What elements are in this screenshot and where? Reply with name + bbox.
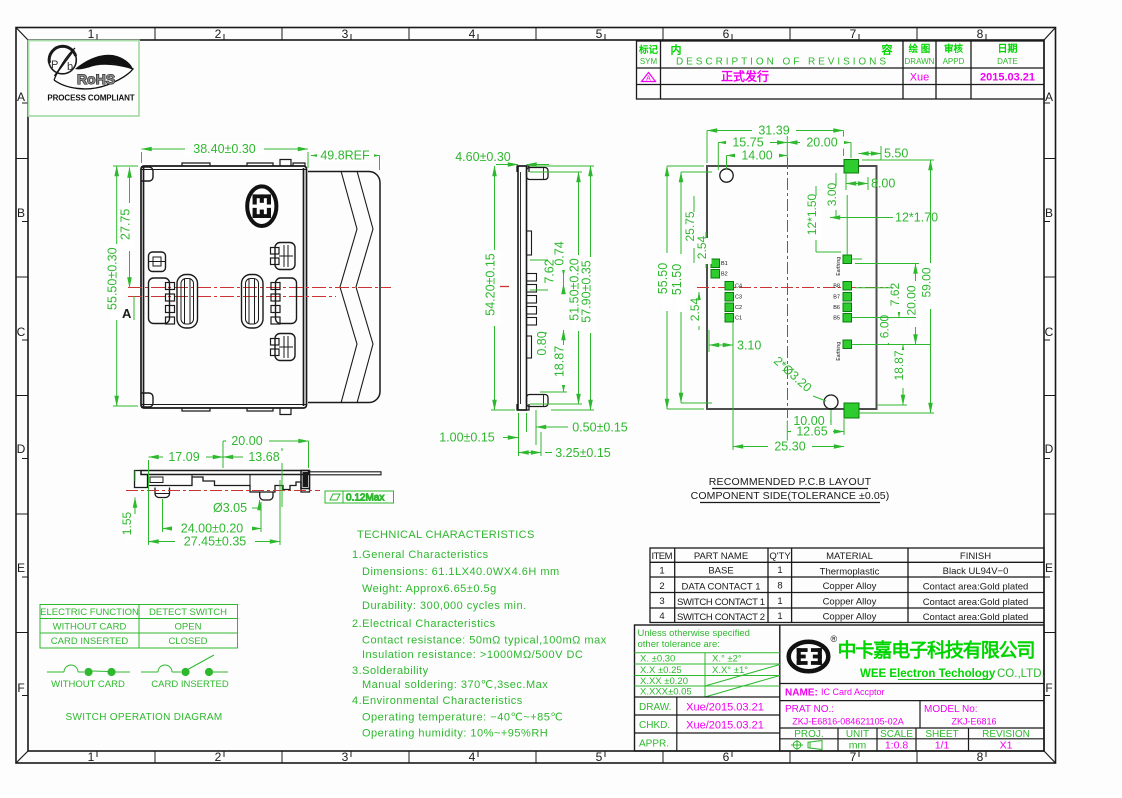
svg-text:X.X° ±1°: X.X° ±1° — [712, 665, 748, 676]
svg-text:55.50: 55.50 — [656, 263, 670, 294]
svg-text:51.50: 51.50 — [670, 264, 684, 295]
svg-text:PRAT NO.:: PRAT NO.: — [785, 704, 834, 715]
svg-text:1.55: 1.55 — [120, 511, 134, 535]
svg-text:RoHS: RoHS — [77, 71, 115, 87]
svg-text:4: 4 — [469, 750, 476, 764]
svg-text:REVISION: REVISION — [982, 729, 1030, 740]
svg-text:7.62: 7.62 — [888, 282, 902, 306]
svg-text:6.00: 6.00 — [878, 314, 892, 338]
svg-text:内: 内 — [671, 43, 682, 57]
svg-text:20.00: 20.00 — [905, 285, 919, 315]
svg-text:A: A — [17, 90, 25, 104]
svg-text:0.74: 0.74 — [553, 241, 567, 265]
svg-text:Dimensions: 61.1LX40.0WX4.6H: Dimensions: 61.1LX40.0WX4.6H mm — [362, 566, 560, 578]
svg-text:CO.,LTD.: CO.,LTD. — [997, 668, 1045, 680]
svg-text:PROCESS COMPLIANT: PROCESS COMPLIANT — [47, 94, 134, 103]
svg-text:D: D — [17, 442, 26, 456]
svg-text:A: A — [646, 76, 651, 83]
svg-text:ELECTRIC FUNCTION: ELECTRIC FUNCTION — [40, 607, 139, 618]
svg-text:20.00: 20.00 — [231, 434, 262, 448]
svg-text:绘 图: 绘 图 — [909, 43, 931, 55]
svg-text:WEE Electron Techology: WEE Electron Techology — [860, 668, 996, 680]
svg-text:CARD INSERTED: CARD INSERTED — [51, 636, 129, 647]
svg-text:49.8REF: 49.8REF — [320, 149, 370, 163]
svg-text:5: 5 — [596, 27, 603, 41]
svg-text:27.75: 27.75 — [119, 209, 133, 240]
svg-text:other tolerance are:: other tolerance are: — [638, 639, 720, 650]
svg-text:ZKJ-E6816-084621105-02A: ZKJ-E6816-084621105-02A — [792, 717, 903, 727]
svg-text:Black UL94V−0: Black UL94V−0 — [943, 566, 1009, 577]
svg-text:审核: 审核 — [944, 43, 964, 55]
svg-text:Unless otherwise specified: Unless otherwise specified — [638, 628, 750, 639]
svg-text:2.Electrical Characteristics: 2.Electrical Characteristics — [352, 618, 496, 630]
svg-text:APPR.: APPR. — [639, 739, 669, 750]
svg-text:A: A — [122, 306, 132, 321]
svg-text:2: 2 — [659, 581, 664, 592]
svg-text:Contact area:Gold plated: Contact area:Gold plated — [923, 582, 1029, 593]
svg-text:2.54: 2.54 — [695, 235, 709, 259]
svg-text:CARD INSERTED: CARD INSERTED — [151, 679, 229, 690]
svg-text:4: 4 — [659, 611, 664, 622]
svg-text:SWITCH CONTACT 2: SWITCH CONTACT 2 — [677, 612, 765, 623]
svg-text:BASE: BASE — [708, 566, 733, 577]
svg-text:20.00: 20.00 — [806, 136, 837, 150]
svg-text:Weight: Approx6.65±0.5g: Weight: Approx6.65±0.5g — [362, 583, 497, 595]
svg-text:Copper Alloy: Copper Alloy — [823, 612, 877, 623]
svg-text:FINISH: FINISH — [960, 551, 991, 562]
svg-text:DATA CONTACT 1: DATA CONTACT 1 — [681, 582, 760, 593]
svg-text:B7: B7 — [833, 295, 840, 301]
svg-text:1: 1 — [777, 596, 782, 607]
svg-text:COMPONENT SIDE(TOLERANCE ±0.: COMPONENT SIDE(TOLERANCE ±0.05) — [691, 490, 890, 502]
svg-text:1.General Characteristics: 1.General Characteristics — [352, 549, 489, 561]
svg-text:7: 7 — [850, 27, 857, 41]
svg-text:1/1: 1/1 — [935, 740, 950, 752]
svg-text:1: 1 — [777, 565, 782, 576]
svg-text:1: 1 — [88, 750, 95, 764]
svg-text:C: C — [1045, 325, 1054, 339]
svg-text:8: 8 — [777, 581, 782, 592]
svg-text:2.54: 2.54 — [688, 297, 702, 321]
svg-text:NAME:: NAME: — [785, 688, 818, 699]
svg-text:b: b — [67, 61, 73, 73]
svg-text:3.25±0.15: 3.25±0.15 — [555, 446, 611, 460]
svg-text:27.45±0.35: 27.45±0.35 — [184, 535, 247, 549]
svg-text:0.12Max: 0.12Max — [346, 493, 384, 504]
svg-text:12*1.50: 12*1.50 — [805, 193, 819, 235]
svg-text:7: 7 — [850, 750, 857, 764]
svg-text:1: 1 — [777, 611, 782, 622]
svg-text:57.90±0.35: 57.90±0.35 — [580, 260, 594, 323]
svg-text:1:0.8: 1:0.8 — [885, 740, 909, 752]
svg-text:4.60±0.30: 4.60±0.30 — [455, 150, 511, 164]
svg-text:B1: B1 — [721, 261, 728, 267]
svg-text:E: E — [17, 561, 25, 575]
svg-text:MATERIAL: MATERIAL — [826, 551, 873, 562]
svg-text:WITHOUT CARD: WITHOUT CARD — [53, 622, 127, 633]
svg-text:SHEET: SHEET — [925, 729, 958, 740]
svg-text:E: E — [1045, 561, 1053, 575]
svg-text:Operating humidity: 10%~+95%R: Operating humidity: 10%~+95%RH — [362, 728, 548, 740]
svg-text:3.Solderability: 3.Solderability — [352, 665, 429, 677]
svg-text:12.65: 12.65 — [796, 425, 827, 439]
svg-text:X1: X1 — [1000, 740, 1013, 752]
svg-text:5.50: 5.50 — [884, 147, 908, 161]
svg-text:54.20±0.15: 54.20±0.15 — [484, 253, 498, 316]
svg-text:Earthing: Earthing — [836, 342, 842, 361]
svg-text:1: 1 — [88, 27, 95, 41]
svg-text:中卡嘉电子科技有限公司: 中卡嘉电子科技有限公司 — [838, 639, 1036, 662]
svg-text:SWITCH OPERATION DIAGRAM: SWITCH OPERATION DIAGRAM — [65, 712, 222, 723]
svg-text:SWITCH CONTACT 1: SWITCH CONTACT 1 — [677, 597, 765, 608]
svg-text:17.09: 17.09 — [168, 450, 199, 464]
svg-text:Insulation resistance: >1000M: Insulation resistance: >1000MΩ/500V DC — [362, 649, 583, 661]
svg-text:B5: B5 — [833, 316, 840, 322]
svg-text:3: 3 — [342, 750, 349, 764]
svg-text:DETECT SWITCH: DETECT SWITCH — [149, 607, 227, 618]
svg-text:PART NAME: PART NAME — [694, 551, 748, 562]
svg-text:6: 6 — [723, 27, 730, 41]
svg-text:55.50±0.30: 55.50±0.30 — [106, 247, 120, 310]
svg-text:DRAWN: DRAWN — [905, 57, 935, 66]
svg-text:2: 2 — [215, 27, 222, 41]
svg-text:14.00: 14.00 — [741, 149, 772, 163]
svg-text:PROJ.: PROJ. — [794, 729, 823, 740]
svg-text:®: ® — [831, 634, 838, 644]
svg-text:C: C — [17, 325, 26, 339]
svg-text:8: 8 — [977, 750, 984, 764]
svg-text:1: 1 — [659, 566, 664, 577]
svg-text:Xue/2015.03.21: Xue/2015.03.21 — [686, 702, 764, 714]
svg-text:B: B — [1045, 206, 1053, 220]
svg-text:D: D — [1045, 442, 1054, 456]
svg-text:P: P — [51, 59, 58, 71]
svg-text:Contact area:Gold plated: Contact area:Gold plated — [923, 597, 1029, 608]
svg-text:OPEN: OPEN — [175, 622, 202, 633]
svg-text:RECOMMENDED P.C.B LAYOUT: RECOMMENDED P.C.B LAYOUT — [709, 476, 872, 488]
svg-text:C4: C4 — [735, 284, 742, 290]
svg-text:C3: C3 — [735, 295, 742, 301]
svg-text:59.00: 59.00 — [920, 267, 934, 297]
svg-text:18.87: 18.87 — [553, 346, 567, 377]
svg-text:24.00±0.20: 24.00±0.20 — [181, 522, 244, 536]
svg-text:X.X ±0.25: X.X ±0.25 — [640, 665, 682, 676]
svg-text:15.75: 15.75 — [732, 136, 763, 150]
svg-text:Ø3.05: Ø3.05 — [213, 501, 247, 515]
svg-text:MODEL No:: MODEL No: — [924, 704, 978, 715]
svg-text:A: A — [1045, 90, 1053, 104]
svg-text:25.30: 25.30 — [774, 440, 805, 454]
svg-text:容: 容 — [881, 43, 893, 57]
svg-text:Manual soldering: 370℃,3sec.M: Manual soldering: 370℃,3sec.Max — [362, 679, 548, 691]
svg-text:Copper Alloy: Copper Alloy — [823, 581, 877, 592]
svg-text:X.XXX±0.05: X.XXX±0.05 — [640, 687, 692, 698]
svg-text:4.Environmental Characteristi: 4.Environmental Characteristics — [352, 695, 523, 707]
svg-text:X.XX ±0.20: X.XX ±0.20 — [640, 676, 688, 687]
svg-text:mm: mm — [849, 740, 867, 752]
svg-text:3: 3 — [342, 27, 349, 41]
svg-text:F: F — [1045, 681, 1052, 695]
svg-text:X.° ±2°: X.° ±2° — [712, 654, 742, 665]
svg-text:4: 4 — [469, 27, 476, 41]
svg-text:6: 6 — [723, 750, 730, 764]
svg-text:3.10: 3.10 — [737, 339, 761, 353]
svg-text:标记: 标记 — [638, 44, 659, 56]
svg-text:2: 2 — [215, 750, 222, 764]
svg-text:TECHNICAL CHARACTERISTICS: TECHNICAL CHARACTERISTICS — [357, 529, 535, 541]
svg-text:12*1.70: 12*1.70 — [895, 211, 938, 225]
svg-text:B: B — [17, 206, 25, 220]
svg-text:WITHOUT CARD: WITHOUT CARD — [51, 679, 125, 690]
svg-text:Thermoplastic: Thermoplastic — [820, 567, 880, 578]
svg-text:8: 8 — [977, 27, 984, 41]
svg-text:C2: C2 — [735, 305, 742, 311]
svg-text:B6: B6 — [833, 305, 840, 311]
svg-text:UNIT: UNIT — [846, 729, 869, 740]
svg-text:SYM: SYM — [640, 57, 658, 66]
svg-text:正式发行: 正式发行 — [721, 69, 769, 84]
svg-text:Earthing: Earthing — [836, 257, 842, 276]
svg-text:DRAW.: DRAW. — [639, 702, 671, 713]
svg-text:CHKD.: CHKD. — [639, 720, 670, 731]
svg-text:Durability: 300,000 cycles m: Durability: 300,000 cycles min. — [362, 600, 527, 612]
svg-text:0.80: 0.80 — [535, 331, 549, 355]
svg-text:5: 5 — [596, 750, 603, 764]
svg-text:DATE: DATE — [997, 57, 1018, 66]
svg-text:2015.03.21: 2015.03.21 — [980, 72, 1035, 84]
svg-text:8.00: 8.00 — [871, 177, 895, 191]
svg-text:ZKJ-E6816: ZKJ-E6816 — [951, 717, 996, 727]
svg-text:Xue: Xue — [910, 72, 930, 84]
svg-text:C1: C1 — [735, 316, 742, 322]
svg-text:Xue/2015.03.21: Xue/2015.03.21 — [686, 720, 764, 732]
svg-text:APPD: APPD — [943, 57, 965, 66]
svg-text:Contact resistance: 50mΩ typ: Contact resistance: 50mΩ typical,100mΩ m… — [362, 635, 607, 647]
svg-text:Q'TY: Q'TY — [769, 551, 791, 562]
svg-text:38.40±0.30: 38.40±0.30 — [193, 142, 256, 156]
svg-text:IC Card Accptor: IC Card Accptor — [821, 687, 885, 697]
svg-text:SCALE: SCALE — [880, 729, 913, 740]
svg-text:Copper Alloy: Copper Alloy — [823, 597, 877, 608]
svg-text:1.00±0.15: 1.00±0.15 — [439, 431, 495, 445]
svg-text:Operating temperature: −40℃~+: Operating temperature: −40℃~+85℃ — [362, 712, 563, 724]
svg-text:Contact area:Gold plated: Contact area:Gold plated — [923, 612, 1029, 623]
svg-text:F: F — [17, 681, 24, 695]
svg-text:3.00: 3.00 — [825, 182, 839, 206]
svg-text:CLOSED: CLOSED — [168, 636, 207, 647]
svg-text:B8: B8 — [833, 284, 840, 290]
svg-text:ITEM: ITEM — [652, 551, 673, 562]
svg-text:X. ±0.30: X. ±0.30 — [640, 654, 675, 665]
svg-text:B2: B2 — [721, 272, 728, 278]
svg-text:13.68: 13.68 — [248, 450, 279, 464]
svg-text:日期: 日期 — [998, 42, 1018, 55]
svg-text:0.50±0.15: 0.50±0.15 — [572, 421, 628, 435]
svg-text:3: 3 — [659, 596, 664, 607]
svg-text:18.87: 18.87 — [892, 350, 906, 380]
